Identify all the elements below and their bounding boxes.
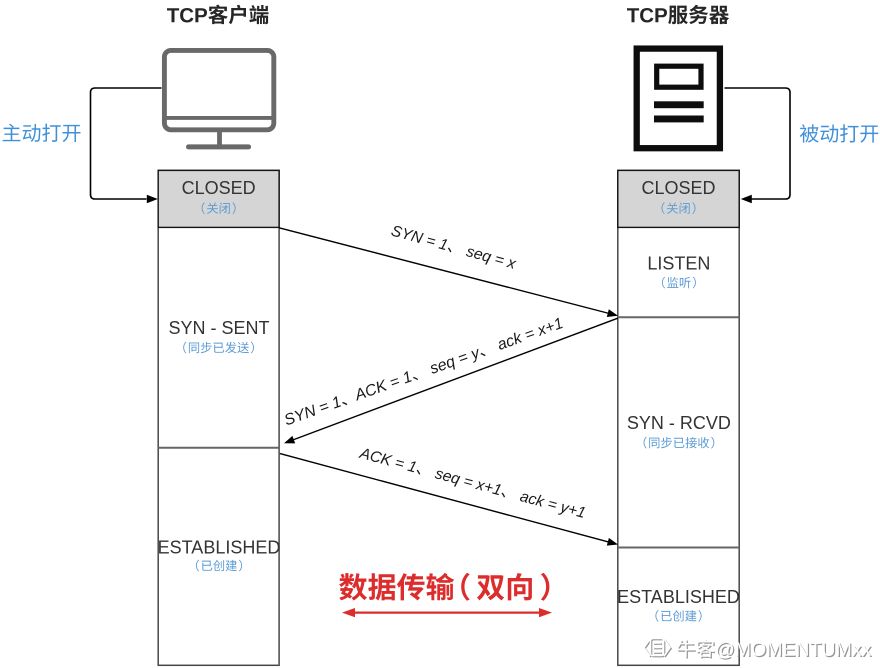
svg-text:CLOSED: CLOSED [182,178,256,198]
svg-text:SYN - RCVD: SYN - RCVD [627,413,731,433]
svg-text:CLOSED: CLOSED [641,178,715,198]
svg-text:ESTABLISHED: ESTABLISHED [617,587,740,607]
svg-text:SYN - SENT: SYN - SENT [168,318,269,338]
svg-text:ESTABLISHED: ESTABLISHED [158,537,281,557]
svg-text:LISTEN: LISTEN [647,254,710,274]
